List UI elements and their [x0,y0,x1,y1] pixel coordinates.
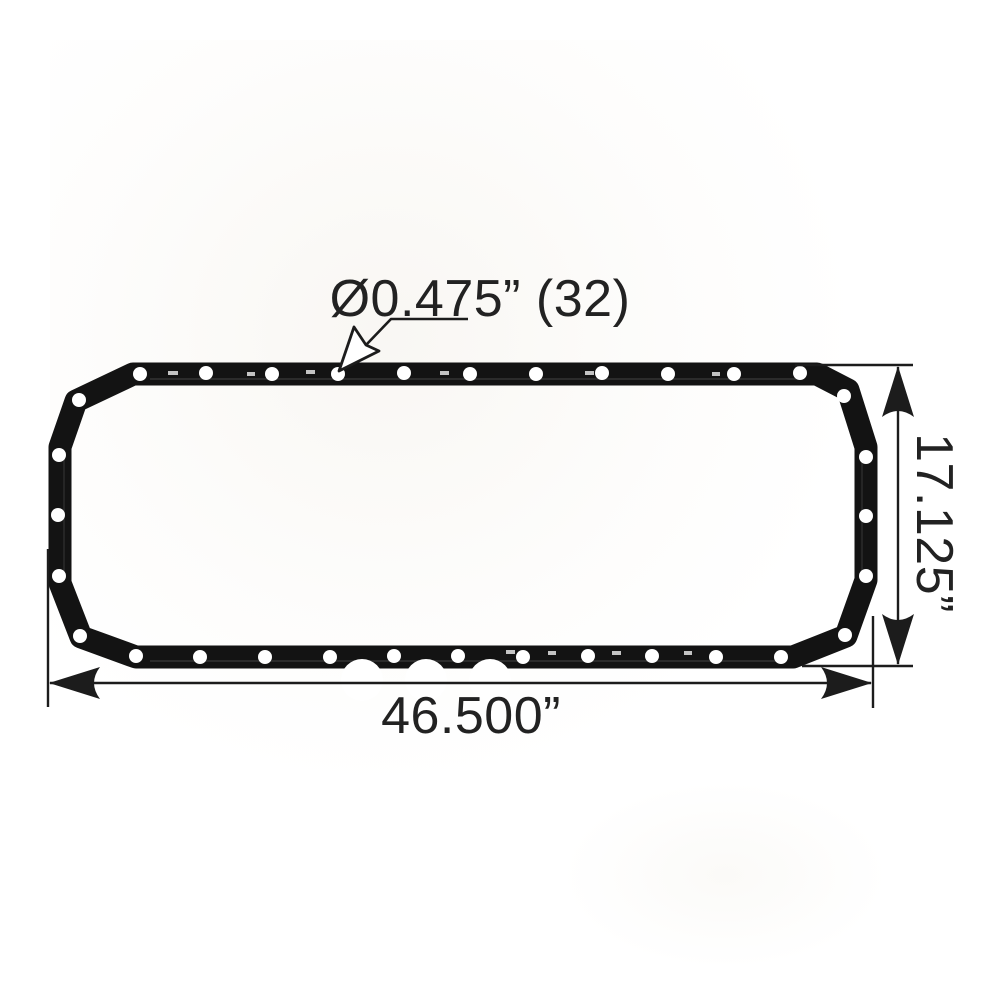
bolt-hole [129,649,143,663]
width-arrowhead-left-icon [49,667,100,699]
bolt-hole [595,366,609,380]
bolt-hole [52,448,66,462]
bolt-hole [193,650,207,664]
width-dimension-label: 46.500” [381,687,561,745]
bolt-hole [709,650,723,664]
bolt-hole [529,367,543,381]
bolt-hole [727,367,741,381]
scallop-cutout [341,659,383,701]
gasket-technical-drawing: Ø0.475” (32) 46.500” 17.125” [0,0,1000,1000]
bolt-hole [516,650,530,664]
bolt-hole [463,367,477,381]
bolt-hole [265,367,279,381]
hole-callout: Ø0.475” (32) [330,270,631,371]
bolt-hole [73,629,87,643]
height-dimension: 17.125” [795,365,963,666]
gasket [51,366,873,701]
bolt-hole [859,569,873,583]
bolt-hole [397,366,411,380]
height-dimension-label: 17.125” [905,433,963,613]
bolt-holes [51,366,873,664]
bolt-hole [774,650,788,664]
bolt-hole [859,509,873,523]
bolt-hole [72,393,86,407]
bolt-hole [661,367,675,381]
bolt-hole [51,508,65,522]
gasket-texture [64,379,862,661]
hole-diameter-label: Ø0.475” (32) [330,270,631,328]
bolt-hole [133,367,147,381]
bolt-hole [581,649,595,663]
bolt-hole [837,389,851,403]
height-arrowhead-up-icon [882,366,914,417]
height-arrowhead-down-icon [882,614,914,665]
bolt-hole [793,366,807,380]
gasket-relief-marks [168,370,720,655]
bolt-hole [258,650,272,664]
bolt-hole [387,649,401,663]
gasket-outline [60,374,866,657]
bolt-hole [859,450,873,464]
bolt-hole [323,650,337,664]
drawing-canvas: Ø0.475” (32) 46.500” 17.125” [0,0,1000,1000]
bolt-hole [199,366,213,380]
bolt-hole [451,649,465,663]
bolt-hole [52,569,66,583]
width-arrowhead-right-icon [821,667,872,699]
bolt-hole [838,628,852,642]
bolt-hole [645,649,659,663]
